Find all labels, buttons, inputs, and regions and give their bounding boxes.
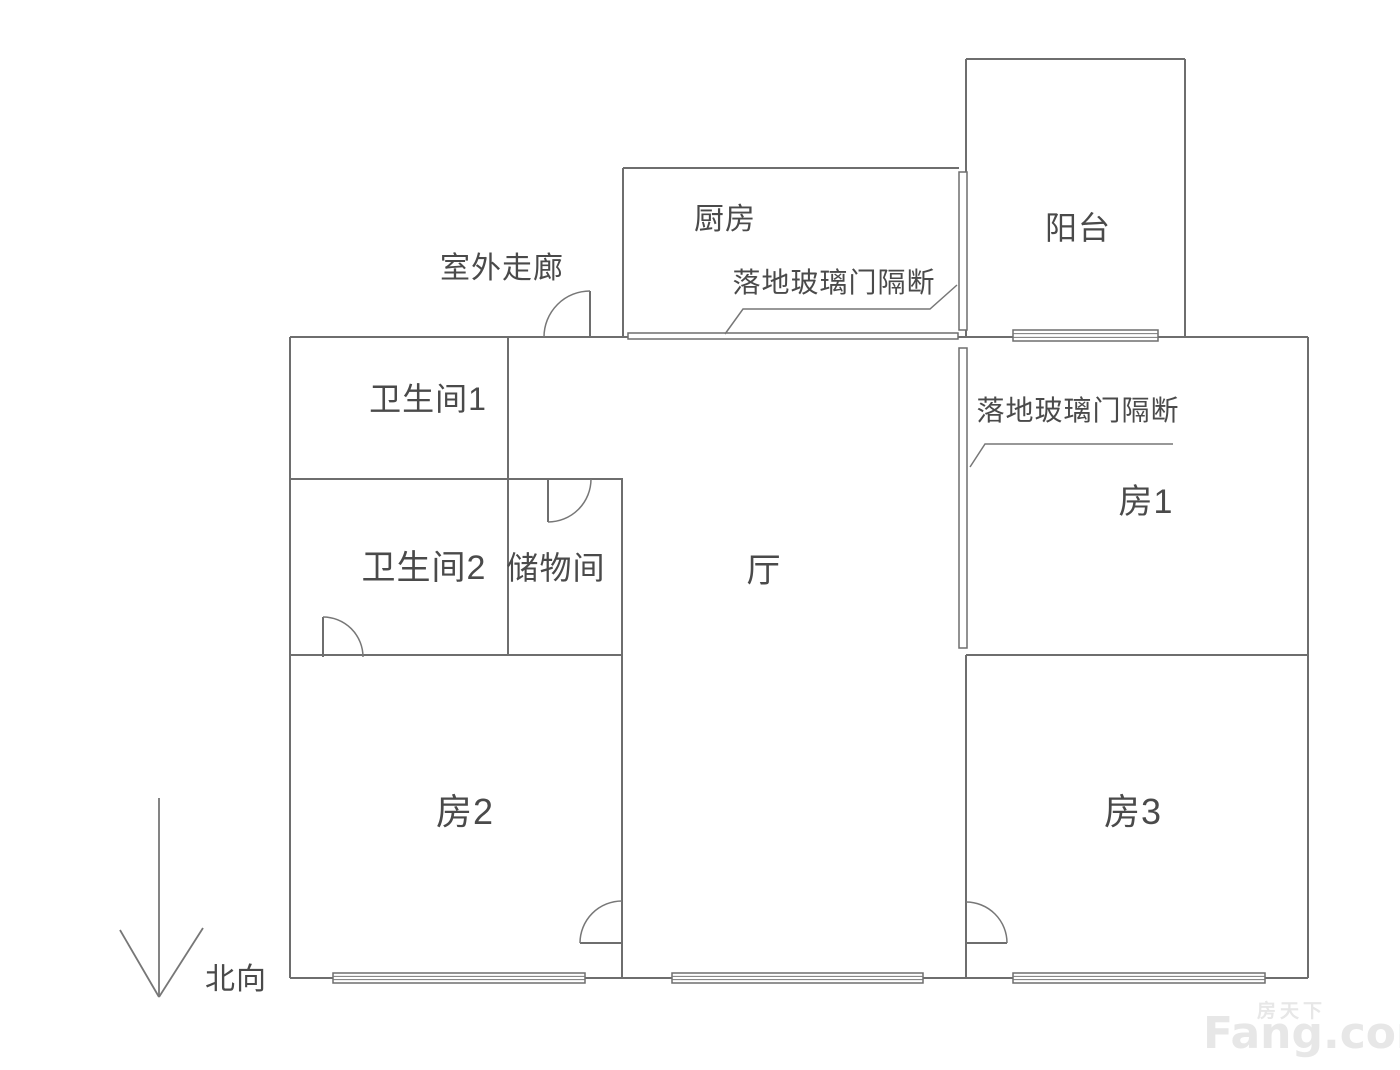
window (1013, 973, 1265, 983)
glass-partition (959, 172, 967, 330)
north-arrow-head (159, 928, 203, 997)
label-bathroom-1: 卫生间1 (369, 383, 487, 415)
north-arrow-head (120, 930, 159, 997)
watermark-logo-text: Fang.com (1203, 1008, 1400, 1059)
label-balcony: 阳台 (1045, 212, 1111, 244)
fang-watermark: 房天下 Fang.com (1203, 996, 1399, 1064)
label-glass-partition-2: 落地玻璃门隔断 (976, 397, 1179, 425)
window (672, 973, 923, 983)
room2-door-swing-arc (580, 901, 622, 943)
storage-door-swing-arc (548, 479, 591, 522)
label-room-1: 房1 (1119, 485, 1174, 519)
label-glass-partition-1: 落地玻璃门隔断 (732, 269, 935, 297)
label-north-direction: 北向 (205, 965, 267, 995)
floor-plan-drawing (0, 0, 1400, 1070)
room3-door-swing-arc (966, 902, 1007, 943)
label-outdoor-corridor: 室外走廊 (440, 254, 564, 284)
bath2-door-swing-arc (323, 617, 363, 657)
glass-partition (959, 348, 967, 648)
label-kitchen: 厨房 (694, 205, 756, 235)
glass-label-leader-2 (970, 444, 1173, 467)
label-storage-room: 储物间 (506, 552, 605, 584)
label-hall: 厅 (747, 554, 782, 588)
glass-partition (628, 333, 958, 339)
label-bathroom-2: 卫生间2 (362, 551, 487, 585)
window (1013, 330, 1158, 341)
floor-plan-canvas: 室外走廊 厨房 落地玻璃门隔断 阳台 落地玻璃门隔断 卫生间1 卫生间2 储物间… (0, 0, 1400, 1070)
window (333, 973, 585, 983)
label-room-3: 房3 (1104, 794, 1162, 830)
label-room-2: 房2 (436, 794, 494, 830)
entry-door-swing-arc (544, 291, 590, 337)
